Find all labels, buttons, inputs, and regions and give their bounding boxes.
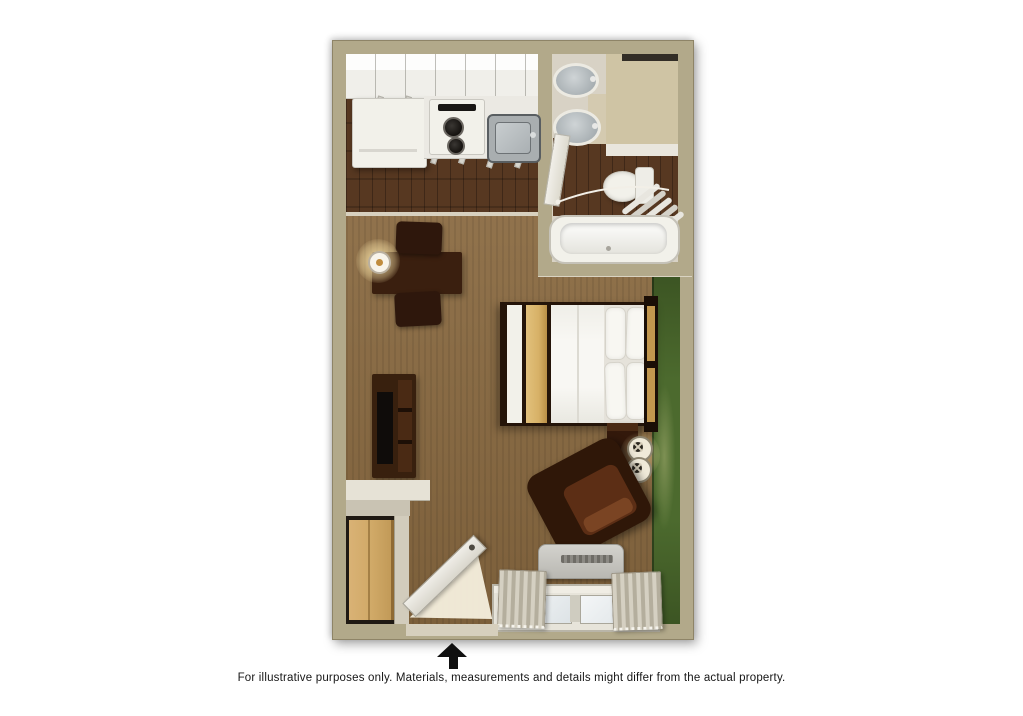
refrigerator: [352, 98, 427, 168]
arrow-stem: [449, 657, 458, 669]
kitchen-sink-basin: [495, 122, 531, 154]
floor-transition-line: [346, 212, 538, 216]
vanity-front-edge: [606, 144, 678, 156]
bed-gold-runner: [526, 305, 547, 423]
wardrobe-seam: [368, 520, 370, 620]
door-knob: [468, 543, 476, 551]
bed-foot-sheet: [507, 305, 522, 423]
closet-wall-front: [346, 500, 410, 516]
entry-threshold: [406, 624, 498, 636]
wall-lamp: [368, 251, 391, 274]
kitchen-faucet: [530, 132, 536, 138]
closet-wall-top: [346, 480, 430, 501]
headboard-panel: [647, 306, 655, 361]
bed-duvet: [551, 305, 604, 423]
stove: [429, 99, 485, 155]
floor-plan-image: For illustrative purposes only. Material…: [0, 0, 1023, 716]
wardrobe: [349, 520, 394, 620]
stove-burner: [447, 137, 465, 155]
stove-burner: [443, 117, 464, 138]
dining-chair: [395, 221, 442, 255]
pillow: [605, 307, 626, 360]
bathroom-sink: [553, 63, 599, 98]
wall-lamp-finial: [376, 259, 383, 266]
bathroom-faucet: [592, 123, 598, 129]
bathroom-faucet: [590, 76, 596, 82]
headboard-panel: [647, 368, 655, 422]
window-mullion: [570, 595, 580, 622]
dining-chair: [394, 291, 442, 327]
bathroom-wall-bottom: [538, 262, 692, 277]
headboard: [644, 296, 658, 432]
disclaimer-caption: For illustrative purposes only. Material…: [0, 672, 1023, 684]
bathtub-basin: [560, 223, 667, 254]
ac-vent: [561, 555, 613, 563]
upper-cabinets: [346, 54, 538, 99]
curtain-left: [497, 569, 547, 629]
kitchen-sink: [487, 114, 541, 163]
bathtub-drain: [606, 246, 611, 251]
arrow-head: [437, 643, 467, 657]
mirror: [622, 54, 678, 61]
curtain-right: [611, 571, 663, 631]
bed: [500, 302, 658, 426]
tv-cabinet: [372, 374, 416, 478]
tv-cabinet-shelves: [398, 380, 412, 472]
stove-control-panel: [438, 104, 476, 111]
refrigerator-handle: [359, 149, 417, 152]
pillow: [604, 362, 627, 421]
nightstand-top-edge: [607, 423, 638, 431]
vanity-counter: [606, 54, 678, 146]
tv-screen: [377, 392, 393, 464]
duvet-crease: [577, 305, 579, 423]
bathtub: [549, 215, 680, 264]
entrance-arrow: [437, 643, 467, 669]
